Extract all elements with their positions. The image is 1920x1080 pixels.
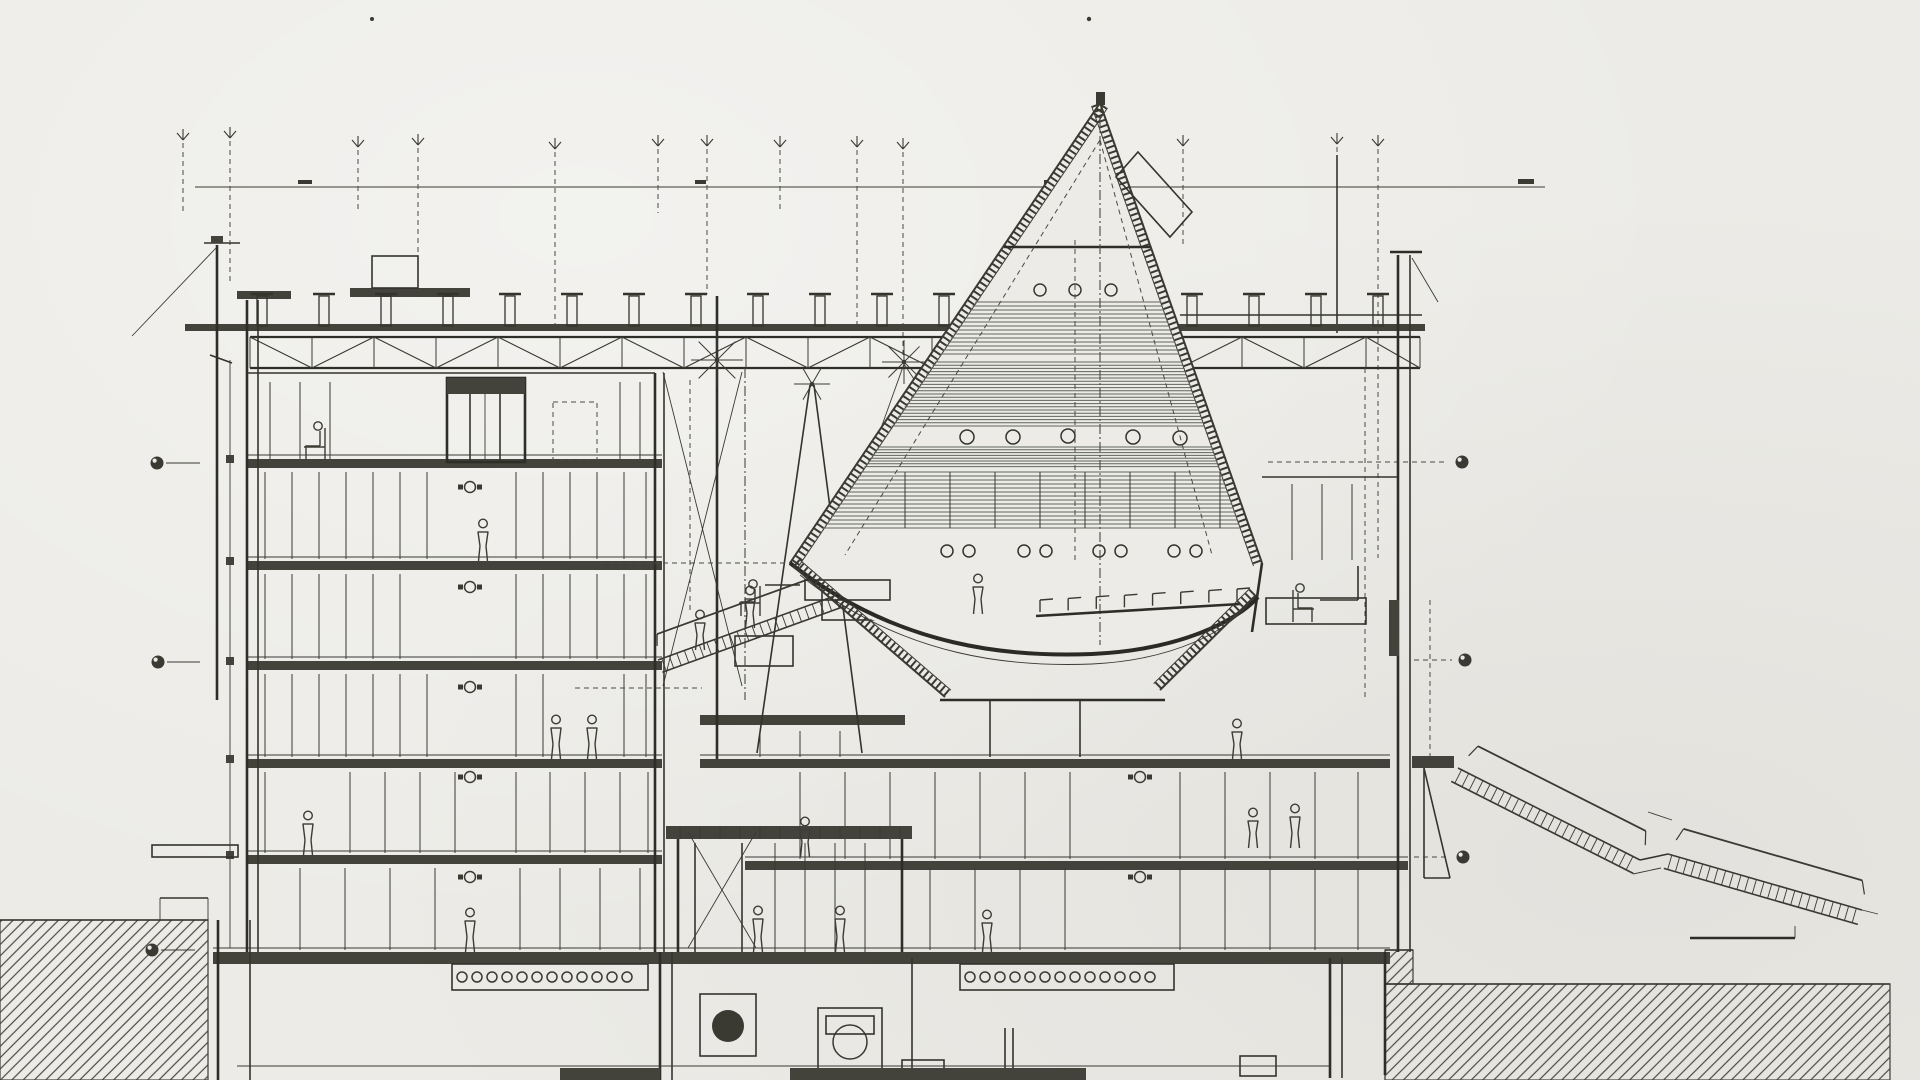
building-section-drawing bbox=[0, 0, 1920, 1080]
roof-structure bbox=[185, 256, 1425, 368]
specks bbox=[370, 17, 1091, 21]
blueprint-page bbox=[0, 0, 1920, 1080]
escalators bbox=[1412, 746, 1878, 938]
ground-hatch bbox=[0, 920, 1890, 1080]
cone bbox=[790, 92, 1262, 655]
masts bbox=[132, 236, 240, 700]
